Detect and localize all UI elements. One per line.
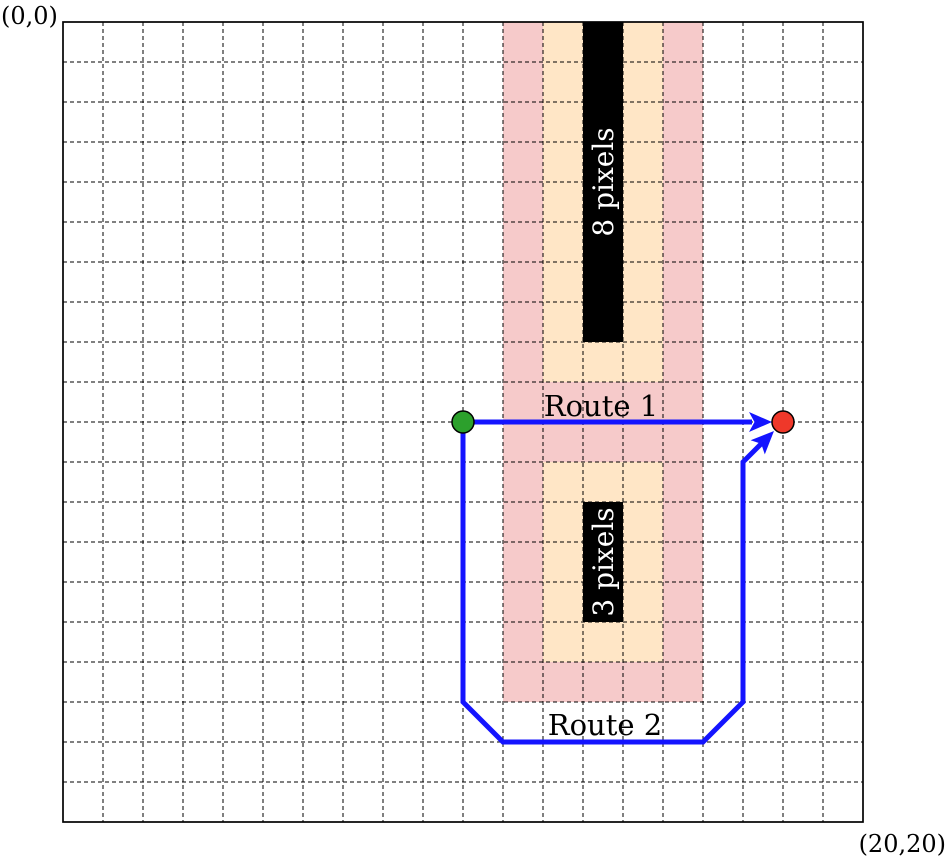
far-corner-coordinate-label: (20,20) (859, 830, 946, 858)
background (0, 0, 947, 859)
start-point-marker (452, 411, 474, 433)
diagram-svg: 8 pixels 3 pixels Route 1 Route 2 (0,0) … (0, 0, 947, 859)
route2-label: Route 2 (548, 708, 662, 742)
obstacle-top-label: 8 pixels (587, 127, 620, 236)
end-point-marker (772, 411, 794, 433)
grid-route-diagram: 8 pixels 3 pixels Route 1 Route 2 (0,0) … (0, 0, 947, 859)
origin-coordinate-label: (0,0) (1, 2, 58, 30)
obstacle-bottom-label: 3 pixels (587, 507, 620, 616)
route1-label: Route 1 (544, 389, 658, 423)
